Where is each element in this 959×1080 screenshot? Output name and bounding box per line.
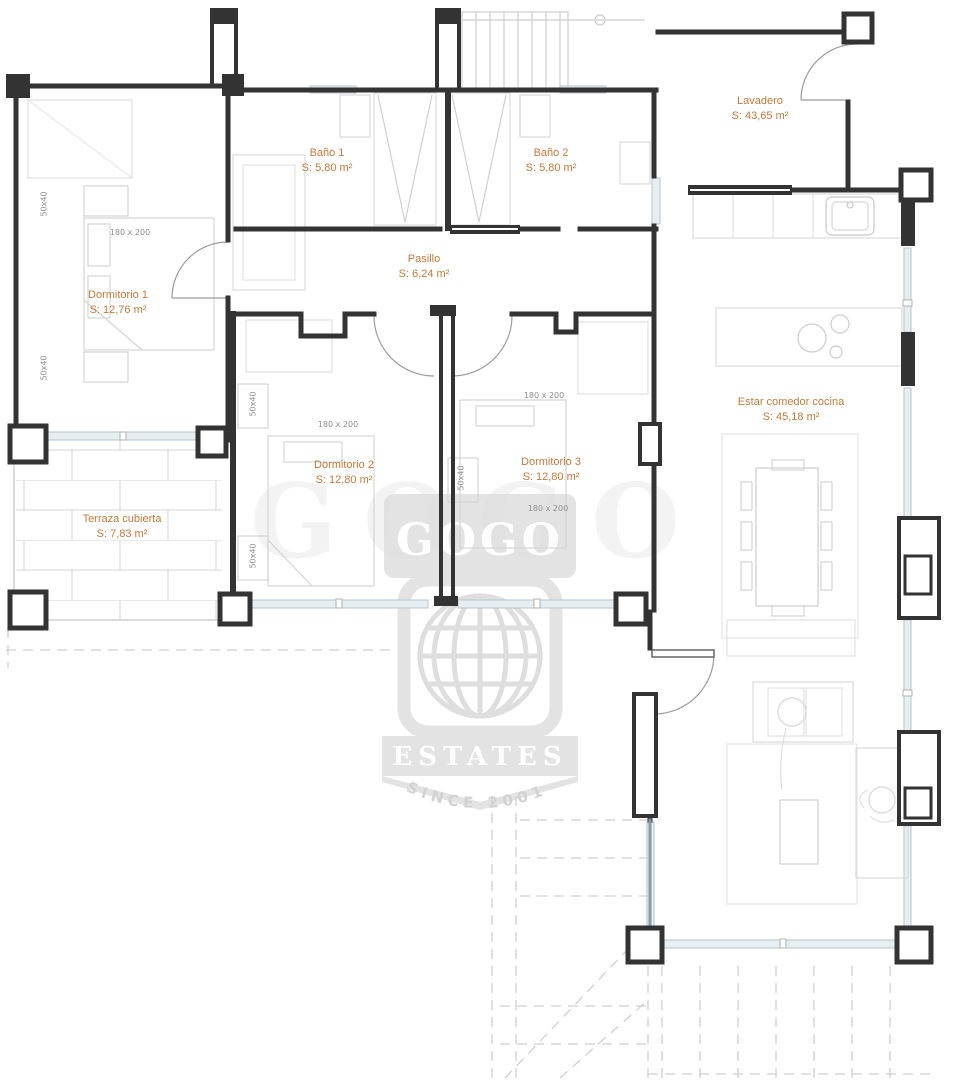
room-label-pasillo: Pasillo S: 6,24 m²: [399, 252, 450, 282]
room-area: S: 12,80 m²: [314, 473, 374, 488]
room-area: S: 12,80 m²: [521, 470, 581, 485]
room-name: Lavadero: [732, 94, 789, 109]
bed-size-label: 180 x 200: [528, 504, 568, 513]
room-area: S: 7,83 m²: [83, 527, 162, 542]
room-area: S: 6,24 m²: [399, 267, 450, 282]
slider-gap-lines: [452, 189, 790, 230]
room-name: Baño 1: [302, 146, 353, 161]
room-label-dormitorio3: Dormitorio 3 S: 12,80 m²: [521, 455, 581, 485]
room-name: Dormitorio 2: [314, 458, 374, 473]
room-label-lavadero: Lavadero S: 43,65 m²: [732, 94, 789, 124]
door-arcs: [172, 44, 857, 714]
room-label-estar: Estar comedor cocina S: 45,18 m²: [738, 395, 844, 425]
room-area: S: 5,80 m²: [526, 161, 577, 176]
bed-size-label: 180 x 200: [318, 420, 358, 429]
room-label-dormitorio1: Dormitorio 1 S: 12,76 m²: [88, 288, 148, 318]
bed-size-label: 180 x 200: [524, 391, 564, 400]
staircase-top: [462, 12, 645, 88]
floor-plan-page: GOGO GOGO ESTATES SINCE 2001: [0, 0, 959, 1080]
room-label-bano1: Baño 1 S: 5,80 m²: [302, 146, 353, 176]
nightstand-size-label: 50x40: [40, 355, 49, 380]
room-name: Terraza cubierta: [83, 512, 162, 527]
room-name: Dormitorio 1: [88, 288, 148, 303]
nightstand-size-label: 50x40: [40, 191, 49, 216]
door-leaf: [652, 650, 714, 657]
room-label-dormitorio2: Dormitorio 2 S: 12,80 m²: [314, 458, 374, 488]
room-name: Baño 2: [526, 146, 577, 161]
room-area: S: 45,18 m²: [738, 410, 844, 425]
room-name: Dormitorio 3: [521, 455, 581, 470]
dashed-projection-lines: [6, 628, 934, 1080]
room-label-bano2: Baño 2 S: 5,80 m²: [526, 146, 577, 176]
room-area: S: 5,80 m²: [302, 161, 353, 176]
room-name: Pasillo: [399, 252, 450, 267]
room-area: S: 12,76 m²: [88, 303, 148, 318]
room-area: S: 43,65 m²: [732, 109, 789, 124]
nightstand-size-label: 50x40: [249, 391, 258, 416]
room-label-terraza: Terraza cubierta S: 7,83 m²: [83, 512, 162, 542]
room-name: Estar comedor cocina: [738, 395, 844, 410]
nightstand-size-label: 50x40: [457, 465, 466, 490]
bed-size-label: 180 x 200: [110, 228, 150, 237]
nightstand-size-label: 50x40: [249, 543, 258, 568]
